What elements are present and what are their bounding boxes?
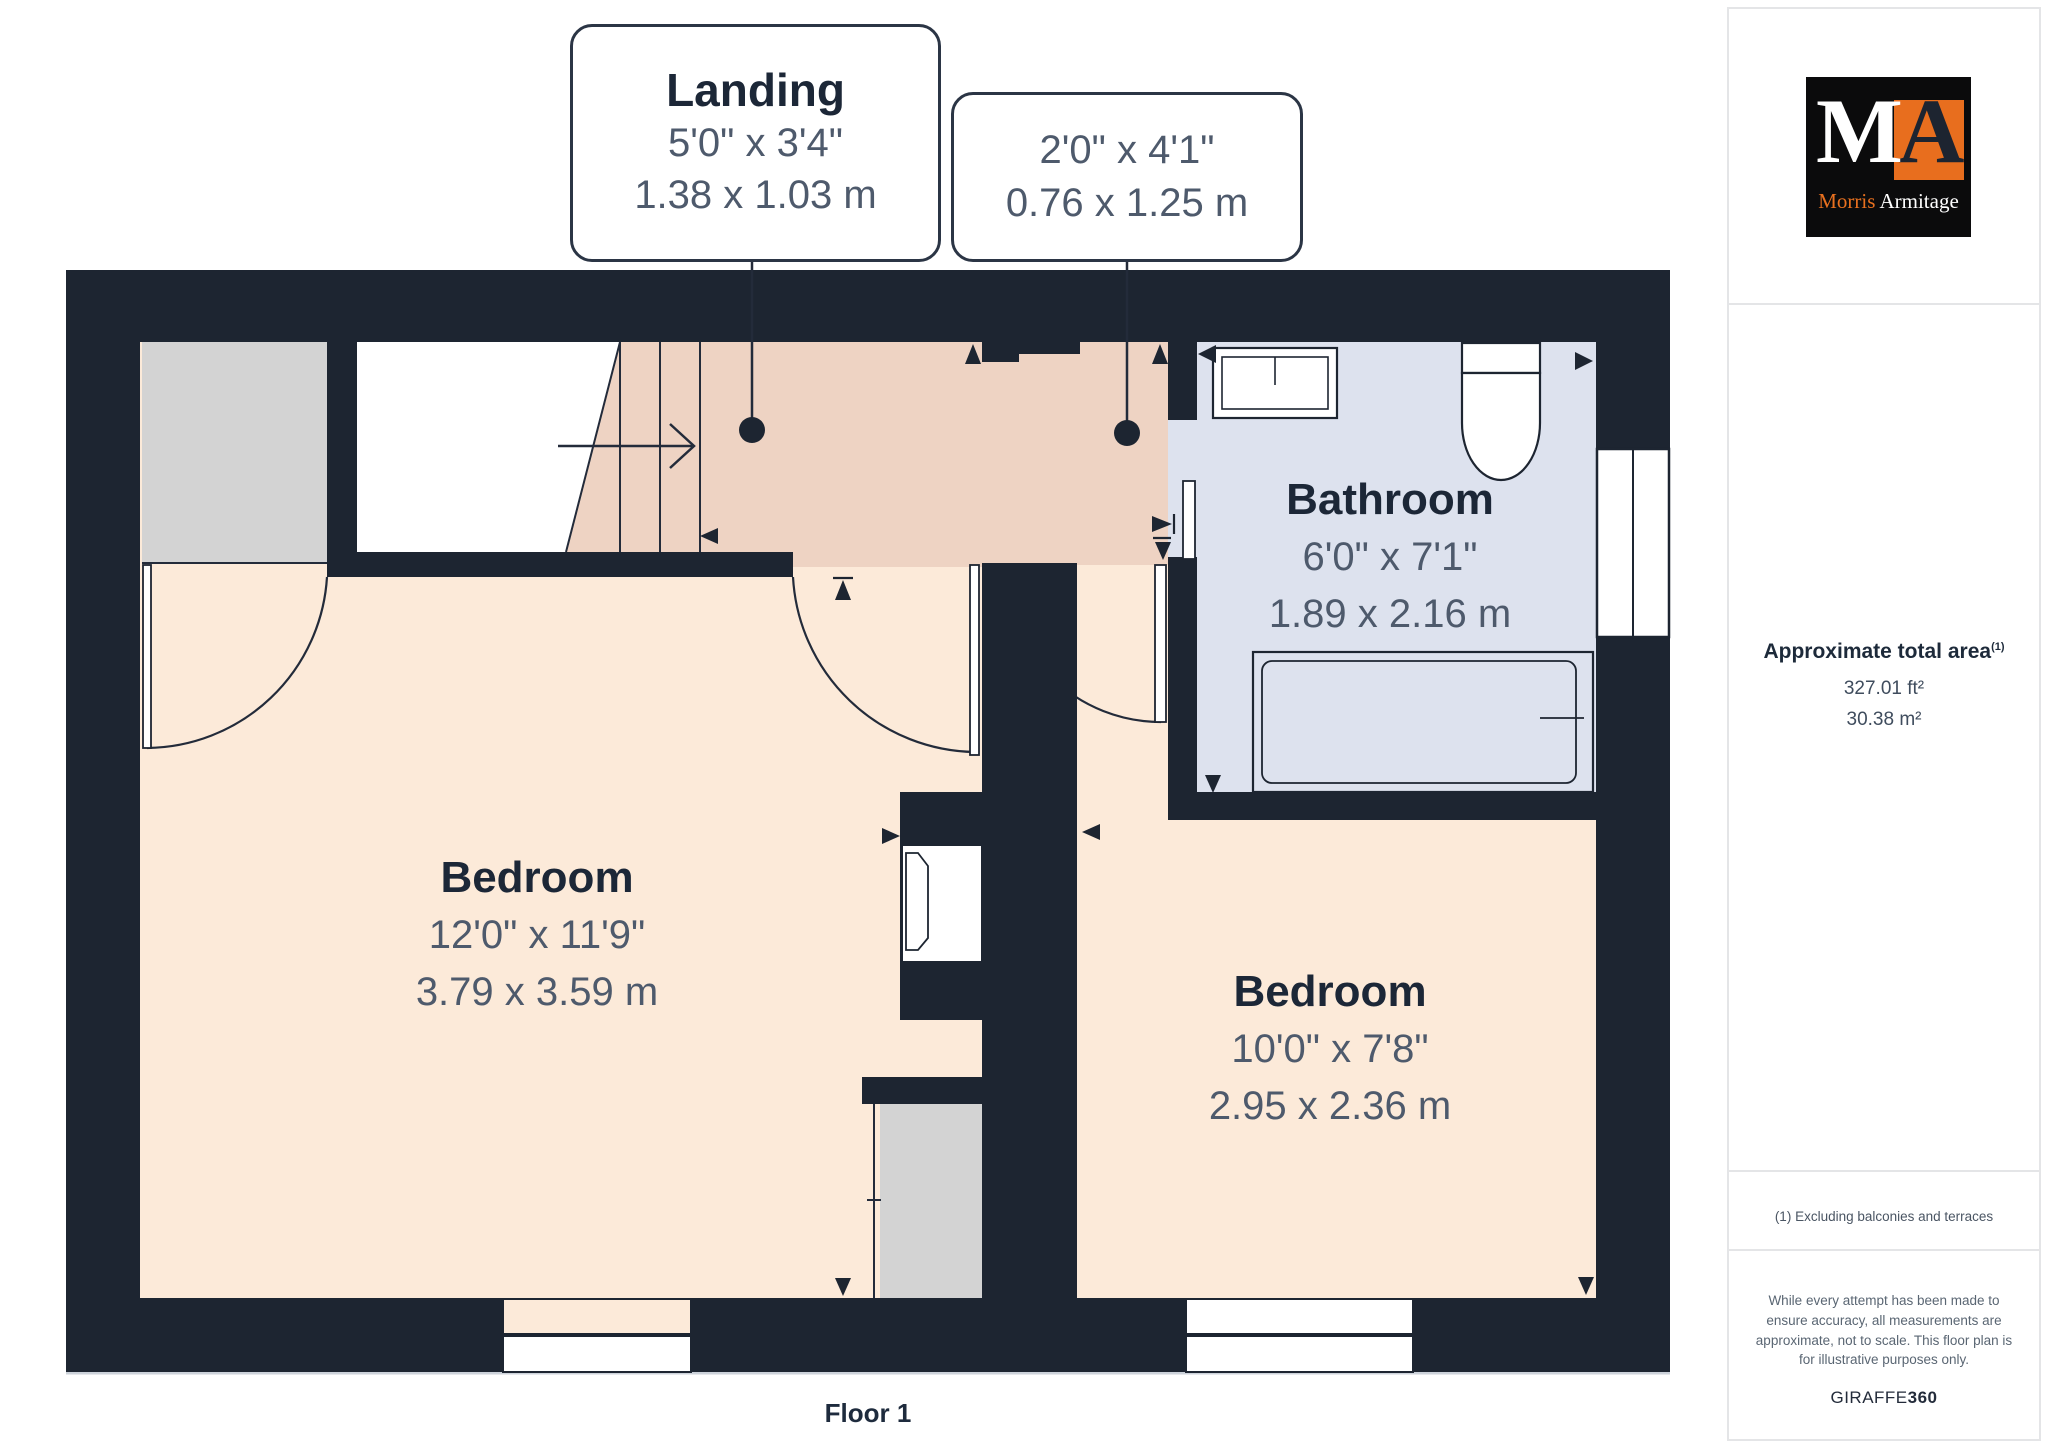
disclaimer-text: While every attempt has been made to ens… [1753, 1291, 2015, 1369]
bedroom1-door-leaf [970, 565, 979, 755]
logo-monogram-m: M [1816, 85, 1903, 177]
stairwell-leader-dot [1114, 420, 1140, 446]
brand-suffix: 360 [1908, 1388, 1938, 1407]
callout-landing-imperial: 5'0" x 3'4" [668, 117, 843, 170]
bathtub [1253, 652, 1593, 792]
callout-stairwell-imperial: 2'0" x 4'1" [1040, 124, 1215, 177]
logo-name-first: Morris [1818, 189, 1875, 213]
callout-landing-title: Landing [666, 64, 845, 117]
bedroom2-door-leaf [1155, 565, 1166, 722]
total-area-imperial: 327.01 ft² [1729, 673, 2039, 704]
callout-landing-metric: 1.38 x 1.03 m [634, 169, 876, 222]
sidebar-divider-3 [1729, 1249, 2039, 1251]
info-sidebar: A M Morris Armitage Approximate total ar… [1727, 7, 2041, 1441]
total-area-heading: Approximate total area(1) [1729, 640, 2039, 664]
giraffe360-brand: GIRAFFE360 [1830, 1388, 1937, 1408]
total-area-heading-text: Approximate total area [1763, 640, 1991, 663]
total-area-section: Approximate total area(1) 327.01 ft² 30.… [1729, 310, 2039, 1177]
floor-label: Floor 1 [668, 1398, 1068, 1429]
brand-name: GIRAFFE [1830, 1388, 1907, 1407]
sidebar-divider-2 [1729, 1170, 2039, 1172]
total-area-superscript: (1) [1991, 641, 2004, 653]
window-right [1597, 449, 1669, 637]
floorplan-page: Landing 5'0" x 3'4" 1.38 x 1.03 m 2'0" x… [0, 0, 2048, 1448]
logo-name-last: Armitage [1879, 189, 1958, 213]
cupboard-door-leaf [143, 565, 151, 748]
footnote-section: (1) Excluding balconies and terraces [1729, 1177, 2039, 1256]
fireplace [902, 845, 982, 962]
cupboard-void [142, 342, 327, 564]
callout-landing: Landing 5'0" x 3'4" 1.38 x 1.03 m [570, 24, 941, 262]
window-bedroom2 [1186, 1299, 1413, 1372]
callout-stairwell: 2'0" x 4'1" 0.76 x 1.25 m [951, 92, 1303, 262]
agency-logo: A M Morris Armitage [1806, 77, 1971, 237]
sidebar-divider-1 [1729, 303, 2039, 305]
wardrobe [880, 1104, 982, 1298]
footnote-text: (1) Excluding balconies and terraces [1775, 1209, 1993, 1224]
logo-monogram-a: A [1898, 85, 1964, 177]
landing-leader-dot [739, 417, 765, 443]
window-bedroom1 [503, 1299, 691, 1372]
bathroom-door-leaf [1183, 481, 1195, 559]
legal-section: While every attempt has been made to ens… [1729, 1256, 2039, 1443]
toilet [1462, 343, 1540, 480]
total-area-metric: 30.38 m² [1729, 704, 2039, 735]
sink [1213, 348, 1337, 418]
callout-stairwell-metric: 0.76 x 1.25 m [1006, 177, 1248, 230]
total-area-values: 327.01 ft² 30.38 m² [1729, 673, 2039, 736]
logo-agency-name: Morris Armitage [1806, 189, 1971, 214]
